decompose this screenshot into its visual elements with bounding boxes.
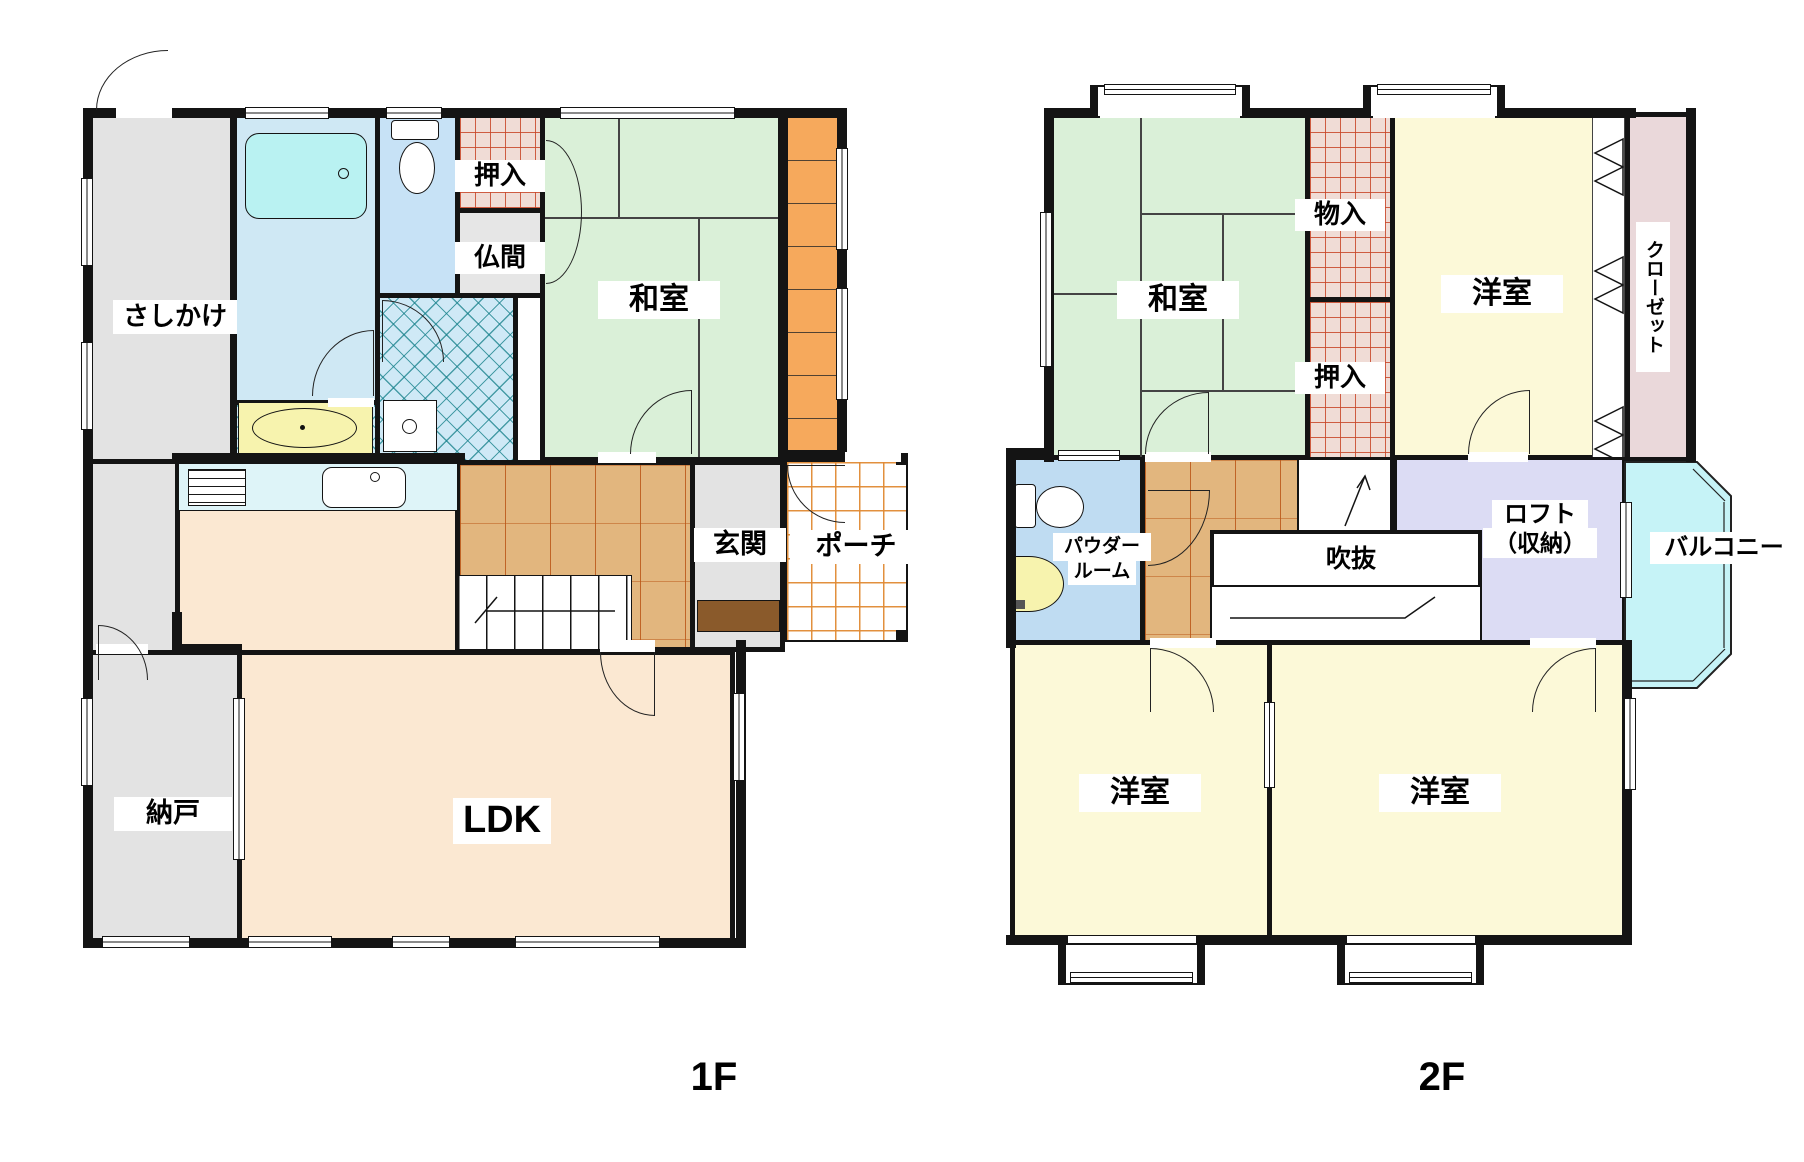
toilet-tank-2f bbox=[1014, 484, 1036, 528]
room-label-nando: 納戸 bbox=[114, 797, 232, 831]
window bbox=[245, 107, 329, 119]
room-label-powder-2: ルーム bbox=[1068, 559, 1136, 585]
window bbox=[1058, 450, 1120, 461]
room-label-closet: クローゼット bbox=[1636, 222, 1670, 372]
wall bbox=[736, 640, 746, 948]
wall bbox=[783, 450, 847, 462]
door-arc bbox=[96, 50, 168, 110]
door-gap bbox=[1150, 638, 1216, 648]
entry-step bbox=[697, 600, 780, 632]
room-label-yoshitsu-bl: 洋室 bbox=[1079, 774, 1201, 812]
window bbox=[81, 698, 93, 786]
floorplan-canvas: さしかけ 押入 仏間 和室 玄関 ポーチ 納戸 LDK 1F bbox=[0, 0, 1804, 1162]
window bbox=[836, 288, 848, 400]
room-label-loft-2: （収納） bbox=[1483, 528, 1597, 558]
kitchen-sink bbox=[322, 467, 406, 508]
balcony-shape bbox=[1623, 450, 1735, 696]
window bbox=[515, 936, 660, 948]
room-label-washitsu-1f: 和室 bbox=[598, 281, 720, 319]
window bbox=[1040, 212, 1052, 367]
window bbox=[1264, 702, 1275, 788]
door-gap bbox=[328, 398, 374, 407]
bathtub bbox=[245, 133, 367, 219]
window bbox=[733, 693, 745, 781]
floor1-title: 1F bbox=[683, 1054, 745, 1100]
stove bbox=[188, 469, 246, 506]
wall bbox=[1006, 448, 1016, 648]
bathtub-drain bbox=[338, 168, 349, 179]
faucet bbox=[370, 472, 380, 482]
door-gap bbox=[600, 640, 655, 652]
wall bbox=[172, 453, 465, 463]
stairs-1f-arrow bbox=[457, 575, 632, 650]
folding-doors bbox=[1592, 117, 1625, 457]
window bbox=[1624, 698, 1636, 790]
stairs-2f-lower-arrow bbox=[1210, 585, 1482, 645]
window bbox=[1377, 84, 1491, 95]
room-label-yoshitsu-br: 洋室 bbox=[1379, 774, 1501, 812]
window bbox=[248, 936, 332, 948]
toilet-bowl-2f bbox=[1036, 486, 1084, 528]
window bbox=[386, 107, 442, 119]
room-label-butsuma: 仏間 bbox=[455, 242, 545, 274]
door-gap bbox=[1100, 108, 1240, 118]
window bbox=[392, 936, 450, 948]
vanity-faucet bbox=[300, 425, 305, 430]
room-label-genkan: 玄関 bbox=[694, 528, 786, 562]
room-label-ldk: LDK bbox=[453, 798, 551, 844]
room-label-oshiire-2f: 押入 bbox=[1295, 362, 1385, 394]
room-label-porch: ポーチ bbox=[790, 530, 922, 564]
window bbox=[233, 698, 245, 860]
window bbox=[1349, 972, 1472, 983]
tatami-line bbox=[1140, 390, 1305, 392]
room-label-yoshitsu-tr: 洋室 bbox=[1441, 275, 1563, 313]
toilet-tank bbox=[391, 120, 439, 140]
window bbox=[836, 148, 848, 250]
wall bbox=[1686, 108, 1696, 462]
room-label-powder-1: パウダー bbox=[1053, 533, 1151, 561]
window bbox=[81, 342, 93, 430]
room-1f-sashikake bbox=[85, 112, 235, 464]
door-gap bbox=[1530, 638, 1596, 648]
room-label-oshiire-1f: 押入 bbox=[455, 160, 545, 192]
room-label-sashikake: さしかけ bbox=[113, 300, 237, 334]
window bbox=[1620, 502, 1632, 598]
window bbox=[560, 107, 735, 119]
window bbox=[102, 936, 190, 948]
window bbox=[1070, 972, 1193, 983]
porch-post bbox=[896, 630, 908, 642]
tatami-line bbox=[698, 217, 700, 457]
sink-drain-2f bbox=[1016, 600, 1025, 609]
laundry-drain bbox=[402, 419, 417, 434]
room-label-washitsu-2f: 和室 bbox=[1117, 281, 1239, 319]
wall bbox=[1622, 640, 1632, 945]
toilet-bowl bbox=[399, 142, 435, 194]
wall bbox=[172, 644, 242, 654]
tatami-line bbox=[618, 117, 620, 217]
room-1f-engawa bbox=[783, 112, 842, 460]
room-label-balcony: バルコニー bbox=[1650, 532, 1798, 564]
window bbox=[1104, 84, 1236, 95]
room-label-fukinuke: 吹抜 bbox=[1305, 543, 1397, 575]
door-gap bbox=[845, 452, 901, 462]
stairs-2f-upper-arrow bbox=[1297, 458, 1392, 538]
room-label-monoire: 物入 bbox=[1295, 199, 1385, 231]
door-gap bbox=[1373, 108, 1495, 118]
floor2-title: 2F bbox=[1411, 1054, 1473, 1100]
window bbox=[81, 178, 93, 266]
room-label-loft-1: ロフト bbox=[1492, 500, 1588, 530]
